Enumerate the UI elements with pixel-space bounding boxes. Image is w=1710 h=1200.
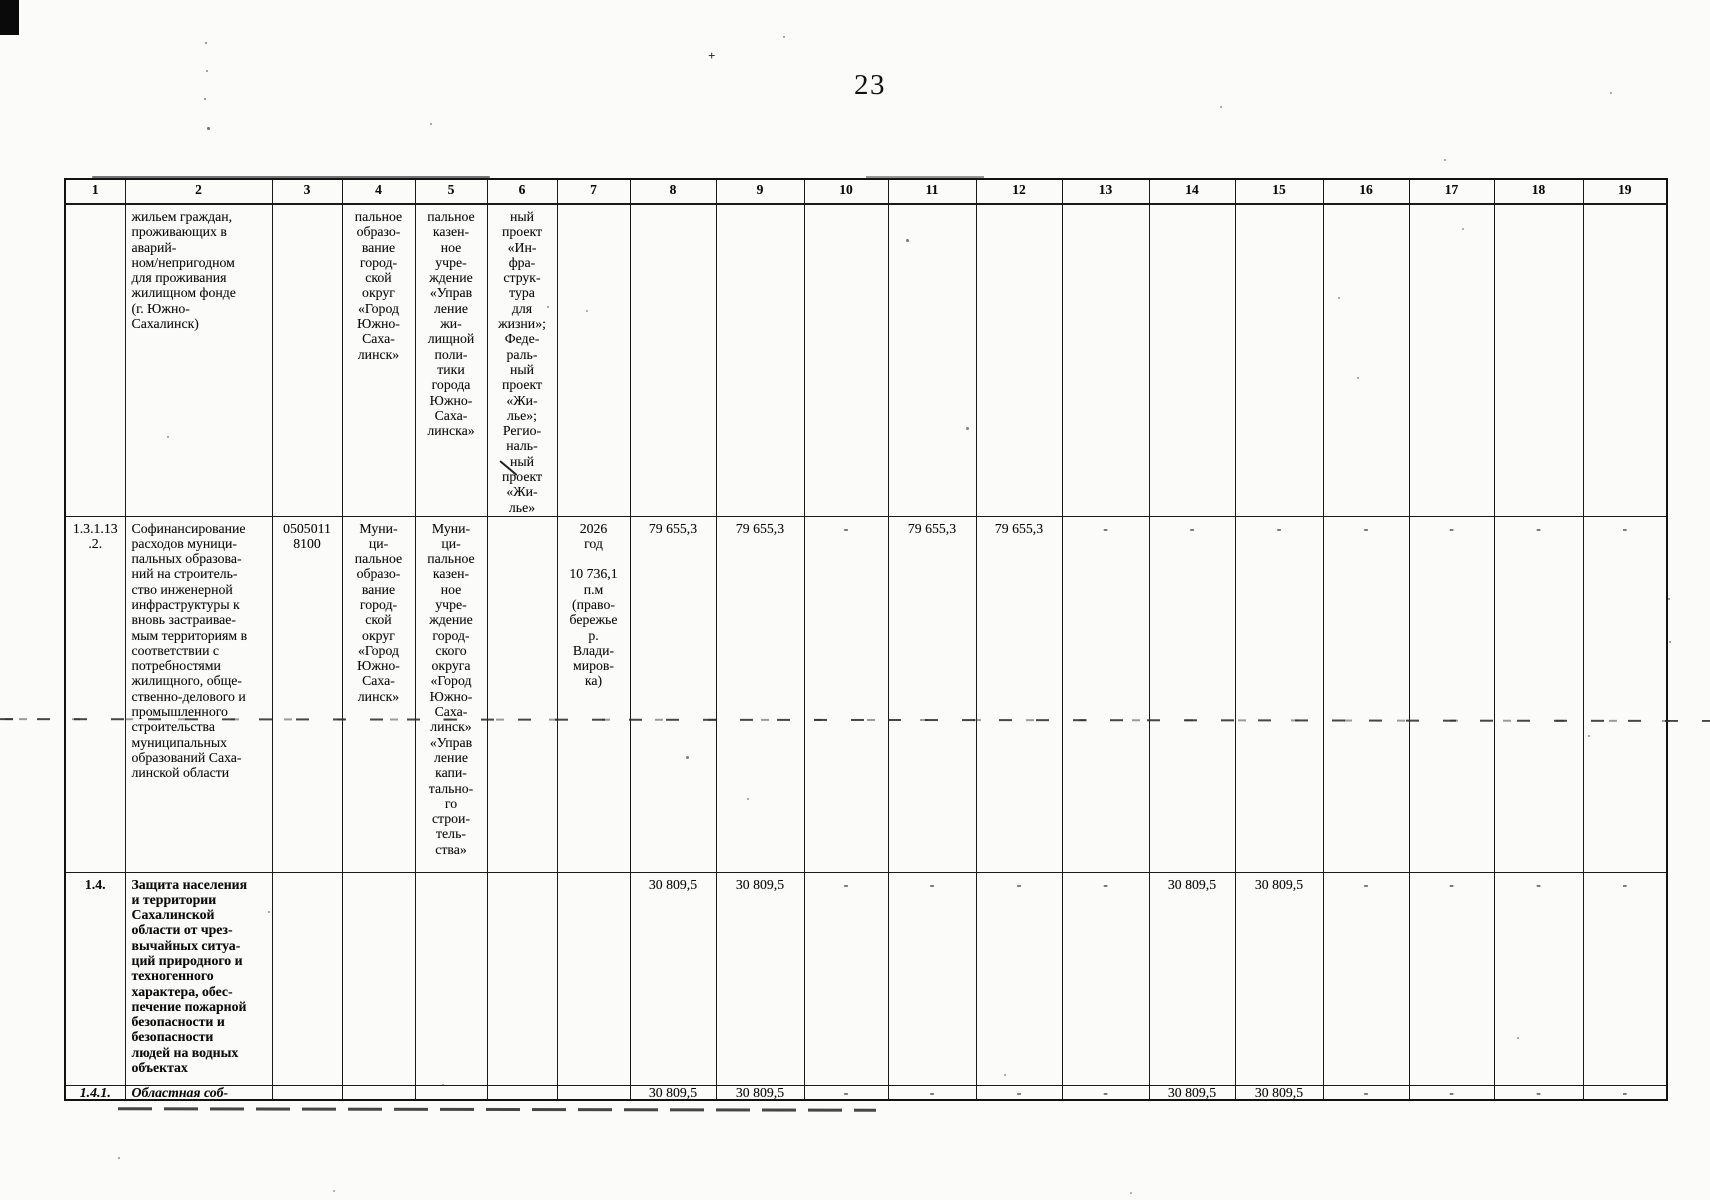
noise-dot (268, 911, 270, 913)
row-continuation-col-14 (1149, 204, 1235, 516)
row-continuation-col-3 (272, 204, 342, 516)
noise-dot (1517, 1037, 1519, 1039)
table-header-row: 12345678910111213141516171819 (65, 179, 1667, 204)
row-1-4-1-col-15: 30 809,5 (1235, 1085, 1323, 1100)
row-1-4-1-col-8: 30 809,5 (630, 1085, 716, 1100)
row-1-4-1-col-5 (415, 1085, 487, 1100)
row-1-3-1-13-2: 1.3.1.13 .2.Софинансирование расходов му… (65, 516, 1667, 872)
row-1-3-1-13-2-col-15: - (1235, 516, 1323, 872)
noise-dot (1004, 1074, 1006, 1076)
row-continuation-col-17 (1409, 204, 1494, 516)
noise-dot (906, 239, 909, 242)
row-1-4-col-13: - (1062, 872, 1149, 1085)
row-1-4-1-col-3 (272, 1085, 342, 1100)
row-1-3-1-13-2-col-2: Софинансирование расходов муници- пальны… (125, 516, 272, 872)
noise-dot (1338, 297, 1340, 299)
page-number: 23 (854, 69, 886, 102)
noise-dot (118, 1157, 120, 1159)
row-continuation-col-4: пальное образо- вание город- ской округ … (342, 204, 415, 516)
row-continuation-col-10 (804, 204, 888, 516)
column-header-4: 4 (342, 179, 415, 204)
noise-dot (204, 98, 206, 100)
row-continuation-col-6: ный проект «Ин- фра- струк- тура для жиз… (487, 204, 557, 516)
column-header-15: 15 (1235, 179, 1323, 204)
row-1-4-col-8: 30 809,5 (630, 872, 716, 1085)
row-1-3-1-13-2-col-14: - (1149, 516, 1235, 872)
row-1-4-col-14: 30 809,5 (1149, 872, 1235, 1085)
row-1-3-1-13-2-col-9: 79 655,3 (716, 516, 804, 872)
row-1-4-1-col-19: - (1583, 1085, 1667, 1100)
row-1-3-1-13-2-col-17: - (1409, 516, 1494, 872)
noise-dot (1588, 735, 1590, 737)
row-1-4-col-9: 30 809,5 (716, 872, 804, 1085)
row-1-4-1-col-9: 30 809,5 (716, 1085, 804, 1100)
row-continuation-col-5: пальное казен- ное учре- ждение «Управ л… (415, 204, 487, 516)
row-continuation-col-11 (888, 204, 976, 516)
row-1-4-1-col-6 (487, 1085, 557, 1100)
row-continuation-col-19 (1583, 204, 1667, 516)
noise-dot (1357, 377, 1359, 379)
noise-dot (1668, 598, 1670, 600)
row-1-3-1-13-2-col-13: - (1062, 516, 1149, 872)
scan-corner-artifact (0, 0, 19, 35)
row-1-4-col-1: 1.4. (65, 872, 125, 1085)
noise-dot (1220, 106, 1222, 108)
row-1-4-col-10: - (804, 872, 888, 1085)
noise-dot (1462, 228, 1464, 230)
row-continuation-col-15 (1235, 204, 1323, 516)
column-header-11: 11 (888, 179, 976, 204)
row-1-3-1-13-2-col-5: Муни- ци- пальное казен- ное учре- ждени… (415, 516, 487, 872)
noise-dot (1130, 1192, 1132, 1194)
row-1-4-1-col-16: - (1323, 1085, 1409, 1100)
column-header-17: 17 (1409, 179, 1494, 204)
column-header-6: 6 (487, 179, 557, 204)
document-page: 23 + 12345678910111213141516171819 жилье… (0, 0, 1710, 1200)
row-1-3-1-13-2-col-11: 79 655,3 (888, 516, 976, 872)
scan-smear-top-left (92, 176, 490, 179)
row-1-4-col-3 (272, 872, 342, 1085)
noise-dot (205, 42, 207, 44)
noise-dot (966, 427, 969, 430)
noise-dot (1610, 92, 1612, 94)
row-1-3-1-13-2-col-7: 2026 год 10 736,1 п.м (право- бережье р.… (557, 516, 630, 872)
column-header-10: 10 (804, 179, 888, 204)
row-1-4-1-col-12: - (976, 1085, 1062, 1100)
noise-dot (547, 306, 549, 308)
row-continuation-col-1 (65, 204, 125, 516)
column-header-5: 5 (415, 179, 487, 204)
column-header-1: 1 (65, 179, 125, 204)
row-continuation-col-8 (630, 204, 716, 516)
row-1-4: 1.4.Защита населения и территории Сахали… (65, 872, 1667, 1085)
row-1-3-1-13-2-col-6 (487, 516, 557, 872)
column-header-12: 12 (976, 179, 1062, 204)
row-continuation: жильем граждан, проживающих в аварий- но… (65, 204, 1667, 516)
noise-dot (686, 756, 689, 759)
column-header-16: 16 (1323, 179, 1409, 204)
scan-smear-top-mid (866, 176, 984, 178)
column-header-18: 18 (1494, 179, 1583, 204)
row-1-4-col-2: Защита населения и территории Сахалинско… (125, 872, 272, 1085)
row-1-3-1-13-2-col-19: - (1583, 516, 1667, 872)
column-header-13: 13 (1062, 179, 1149, 204)
row-continuation-col-12 (976, 204, 1062, 516)
row-1-3-1-13-2-col-16: - (1323, 516, 1409, 872)
row-1-4-1-col-7 (557, 1085, 630, 1100)
row-1-4-1: 1.4.1.Областная соб-30 809,530 809,5----… (65, 1085, 1667, 1100)
row-1-4-1-col-13: - (1062, 1085, 1149, 1100)
row-1-4-col-4 (342, 872, 415, 1085)
row-1-4-1-col-11: - (888, 1085, 976, 1100)
noise-dot (1444, 159, 1446, 161)
row-continuation-col-9 (716, 204, 804, 516)
column-header-9: 9 (716, 179, 804, 204)
row-1-4-col-11: - (888, 872, 976, 1085)
row-continuation-col-16 (1323, 204, 1409, 516)
row-1-4-1-col-18: - (1494, 1085, 1583, 1100)
noise-dot (207, 127, 210, 130)
row-1-4-col-6 (487, 872, 557, 1085)
row-continuation-col-7 (557, 204, 630, 516)
noise-dot (747, 798, 749, 800)
row-1-4-col-18: - (1494, 872, 1583, 1085)
column-header-8: 8 (630, 179, 716, 204)
noise-dot (442, 1084, 444, 1086)
row-1-4-col-15: 30 809,5 (1235, 872, 1323, 1085)
row-continuation-col-13 (1062, 204, 1149, 516)
row-1-3-1-13-2-col-3: 0505011 8100 (272, 516, 342, 872)
row-1-4-1-col-4 (342, 1085, 415, 1100)
row-1-4-1-col-14: 30 809,5 (1149, 1085, 1235, 1100)
row-1-3-1-13-2-col-10: - (804, 516, 888, 872)
noise-dot (1669, 641, 1671, 643)
column-header-7: 7 (557, 179, 630, 204)
column-header-2: 2 (125, 179, 272, 204)
noise-dot (430, 123, 432, 125)
scan-plus-speck: + (708, 48, 715, 64)
noise-dot (586, 310, 588, 312)
row-1-4-col-5 (415, 872, 487, 1085)
column-header-14: 14 (1149, 179, 1235, 204)
column-header-3: 3 (272, 179, 342, 204)
row-1-3-1-13-2-col-12: 79 655,3 (976, 516, 1062, 872)
noise-dot (162, 306, 164, 308)
noise-dot (206, 70, 208, 72)
row-1-4-col-19: - (1583, 872, 1667, 1085)
row-1-4-1-col-1: 1.4.1. (65, 1085, 125, 1100)
noise-dot (167, 436, 169, 438)
row-1-4-1-col-10: - (804, 1085, 888, 1100)
noise-dot (783, 36, 785, 38)
row-1-4-1-col-2: Областная соб- (125, 1085, 272, 1100)
row-continuation-col-18 (1494, 204, 1583, 516)
row-1-4-col-7 (557, 872, 630, 1085)
budget-table: 12345678910111213141516171819 жильем гра… (64, 178, 1668, 1101)
row-1-4-1-col-17: - (1409, 1085, 1494, 1100)
row-1-3-1-13-2-col-8: 79 655,3 (630, 516, 716, 872)
row-1-4-col-12: - (976, 872, 1062, 1085)
row-1-4-col-17: - (1409, 872, 1494, 1085)
row-1-4-col-16: - (1323, 872, 1409, 1085)
noise-dot (333, 1190, 335, 1192)
scan-smear-bottom (118, 1107, 876, 1111)
row-1-3-1-13-2-col-18: - (1494, 516, 1583, 872)
column-header-19: 19 (1583, 179, 1667, 204)
row-1-3-1-13-2-col-1: 1.3.1.13 .2. (65, 516, 125, 872)
row-continuation-col-2: жильем граждан, проживающих в аварий- но… (125, 204, 272, 516)
row-1-3-1-13-2-col-4: Муни- ци- пальное образо- вание город- с… (342, 516, 415, 872)
